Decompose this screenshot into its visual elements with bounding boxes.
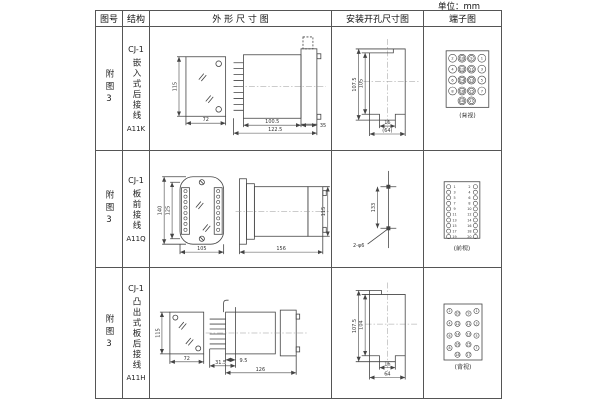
svg-text:6: 6 xyxy=(451,78,454,82)
structure-cell-1: CJ-1 嵌入式后接线 A11K xyxy=(123,27,150,151)
svg-text:3: 3 xyxy=(475,322,477,326)
svg-text:14: 14 xyxy=(455,332,459,336)
fig-no-2: 附图3 xyxy=(103,190,115,229)
dim-width: 105 xyxy=(197,246,206,252)
svg-text:3: 3 xyxy=(453,191,455,195)
outline-drawing-a11q: 140 125 105 156 xyxy=(150,151,331,267)
relay-code-3: A11H xyxy=(127,374,146,382)
dim-outer-height: 107.5 xyxy=(352,77,358,91)
dim-inner-height: 125 xyxy=(166,206,172,215)
svg-text:10: 10 xyxy=(455,312,459,316)
svg-text:2: 2 xyxy=(451,57,453,61)
fig-no-cell-2: 附图3 xyxy=(96,151,123,268)
svg-text:15: 15 xyxy=(466,343,470,347)
svg-text:9: 9 xyxy=(467,312,469,316)
relay-mount-type-3: 凸出式板后接线 xyxy=(130,297,142,371)
svg-text:17: 17 xyxy=(469,99,474,103)
view-label-3: (背视) xyxy=(455,363,472,371)
relay-code-1: A11K xyxy=(127,125,145,133)
dim-inner-height: 105 xyxy=(359,79,365,88)
dim-front-height: 115 xyxy=(173,82,179,91)
relay-model-1: CJ-1 xyxy=(128,45,144,54)
header-fig-no: 图号 xyxy=(96,11,123,27)
dim-front-width: 72 xyxy=(184,356,190,362)
dim-total-width: (64) xyxy=(382,128,392,134)
svg-text:10: 10 xyxy=(467,207,471,211)
mounting-drawing-a11q: 133 2-φ6 xyxy=(332,151,423,267)
fig-no-cell-3: 附图3 xyxy=(96,268,123,398)
dim-body-depth: 100.5 xyxy=(265,119,279,125)
svg-text:14: 14 xyxy=(467,218,471,222)
fig-no-3: 附图3 xyxy=(103,314,115,353)
side-view: 100.5 35 122.5 xyxy=(234,37,327,135)
mounting-cell-3: 107.5 104 16 64 xyxy=(332,268,424,398)
mounting-drawing-a11k: 107.5 105 16 (64) xyxy=(332,27,423,150)
header-structure-text: 结构 xyxy=(127,12,145,25)
svg-text:15: 15 xyxy=(452,224,456,228)
relay-mount-type-1: 嵌入式后接线 xyxy=(130,58,142,121)
terminal-cell-2: 2019181716151413121110987654321 (前视) xyxy=(424,151,501,268)
header-fig-no-text: 图号 xyxy=(100,12,118,25)
svg-text:11: 11 xyxy=(452,213,456,217)
relay-mount-type-2: 板前接线 xyxy=(130,189,142,231)
dim-notch-width: 16 xyxy=(384,120,390,126)
svg-text:4: 4 xyxy=(448,322,450,326)
front-view: 115 72 xyxy=(173,57,226,125)
dim-total-width: 64 xyxy=(384,372,390,378)
spec-table: 图号 结构 外 形 尺 寸 图 安装开孔尺寸图 端子图 附图3 CJ-1 嵌入式… xyxy=(95,10,502,399)
svg-text:5: 5 xyxy=(453,196,455,200)
dim-total-depth: 122.5 xyxy=(268,127,282,133)
header-outline-text: 外 形 尺 寸 图 xyxy=(212,12,268,25)
mounting-cell-1: 107.5 105 16 (64) xyxy=(332,27,424,151)
svg-text:12: 12 xyxy=(467,213,471,217)
terminal-cell-3: 753117151311918161412108642 (背视) xyxy=(424,268,501,398)
header-structure: 结构 xyxy=(123,11,150,27)
svg-text:13: 13 xyxy=(452,218,456,222)
dim-flange-depth: 35 xyxy=(320,123,326,129)
svg-text:18: 18 xyxy=(455,353,459,357)
structure-cell-2: CJ-1 板前接线 A11Q xyxy=(123,151,150,268)
svg-text:7: 7 xyxy=(481,89,483,93)
svg-text:6: 6 xyxy=(468,196,470,200)
relay-model-3: CJ-1 xyxy=(128,284,144,293)
outline-drawing-a11h: 115 72 31.5 9.5 xyxy=(150,268,331,398)
outline-cell-1: 115 72 100.5 35 xyxy=(150,27,332,151)
svg-text:17: 17 xyxy=(452,229,456,233)
outline-drawing-a11k: 115 72 100.5 35 xyxy=(150,27,331,150)
svg-text:12: 12 xyxy=(455,322,459,326)
structure-cell-3: CJ-1 凸出式板后接线 A11H xyxy=(123,268,150,398)
svg-text:5: 5 xyxy=(481,78,483,82)
front-view: 115 72 xyxy=(155,312,203,364)
outline-cell-2: 140 125 105 156 xyxy=(150,151,332,268)
svg-text:11: 11 xyxy=(466,322,470,326)
terminal-cell-1: 171871516851314631112419102 (背视) xyxy=(424,27,501,151)
svg-text:9: 9 xyxy=(453,207,455,211)
svg-text:3: 3 xyxy=(481,67,483,71)
svg-text:4: 4 xyxy=(468,191,470,195)
svg-text:11: 11 xyxy=(469,67,474,71)
svg-text:2: 2 xyxy=(448,309,450,313)
svg-text:15: 15 xyxy=(469,89,474,93)
svg-text:7: 7 xyxy=(453,202,455,206)
view-label-1: (背视) xyxy=(459,111,476,119)
dim-body-height: 115 xyxy=(321,207,327,216)
svg-text:8: 8 xyxy=(451,89,454,93)
dim-front-width: 72 xyxy=(203,117,209,123)
svg-text:18: 18 xyxy=(467,229,471,233)
dim-outer-height: 107.5 xyxy=(352,319,358,333)
terminal-diagram-a11k: 171871516851314631112419102 (背视) xyxy=(424,27,501,150)
hole-note: 2-φ6 xyxy=(353,243,364,249)
svg-text:16: 16 xyxy=(467,224,471,228)
dim-outer-height: 140 xyxy=(158,206,164,215)
terminal-diagram-a11q: 2019181716151413121110987654321 (前视) xyxy=(424,151,501,267)
svg-text:4: 4 xyxy=(451,67,454,71)
svg-text:1: 1 xyxy=(453,185,455,189)
terminal-diagram-a11h: 753117151311918161412108642 (背视) xyxy=(424,268,501,398)
dim-depth: 156 xyxy=(276,246,285,252)
fig-no-1: 附图3 xyxy=(103,69,115,108)
svg-text:12: 12 xyxy=(460,67,465,71)
mounting-drawing-a11h: 107.5 104 16 64 xyxy=(332,268,423,398)
outline-cell-3: 115 72 31.5 9.5 xyxy=(150,268,332,398)
svg-text:8: 8 xyxy=(448,346,450,350)
header-outline: 外 形 尺 寸 图 xyxy=(150,11,332,27)
dim-body-depth: 126 xyxy=(256,367,265,373)
header-mounting-text: 安装开孔尺寸图 xyxy=(346,12,409,25)
fig-no-cell-1: 附图3 xyxy=(96,27,123,151)
relay-model-2: CJ-1 xyxy=(128,176,144,185)
svg-text:9: 9 xyxy=(470,57,473,61)
relay-code-2: A11Q xyxy=(126,235,145,243)
svg-text:2: 2 xyxy=(468,185,470,189)
svg-text:1: 1 xyxy=(475,309,477,313)
mounting-cell-2: 133 2-φ6 xyxy=(332,151,424,268)
svg-text:16: 16 xyxy=(455,343,459,347)
svg-text:13: 13 xyxy=(466,332,470,336)
svg-text:17: 17 xyxy=(466,353,470,357)
header-terminal-text: 端子图 xyxy=(449,12,476,25)
header-terminal: 端子图 xyxy=(424,11,501,27)
dim-comb-depth: 31.5 xyxy=(215,360,226,366)
document-page: 单位：mm 图号 结构 外 形 尺 寸 图 安装开孔尺寸图 端子图 附图3 CJ… xyxy=(0,0,600,400)
front-view: 140 125 105 xyxy=(158,177,224,254)
svg-text:1: 1 xyxy=(481,57,483,61)
svg-text:8: 8 xyxy=(468,202,470,206)
svg-text:7: 7 xyxy=(475,346,477,350)
svg-text:6: 6 xyxy=(448,334,450,338)
svg-text:13: 13 xyxy=(469,78,474,82)
dim-notch-width: 16 xyxy=(384,362,390,368)
dim-panel-offset: 9.5 xyxy=(240,358,248,364)
header-mounting: 安装开孔尺寸图 xyxy=(332,11,424,27)
svg-text:5: 5 xyxy=(475,334,477,338)
dim-inner-height: 104 xyxy=(359,320,365,329)
side-view: 31.5 9.5 126 xyxy=(206,300,307,375)
side-view: 156 115 xyxy=(236,179,330,254)
dim-front-height: 115 xyxy=(155,328,161,337)
view-label-2: (前视) xyxy=(454,244,471,252)
dim-hole-spacing: 133 xyxy=(371,203,377,212)
